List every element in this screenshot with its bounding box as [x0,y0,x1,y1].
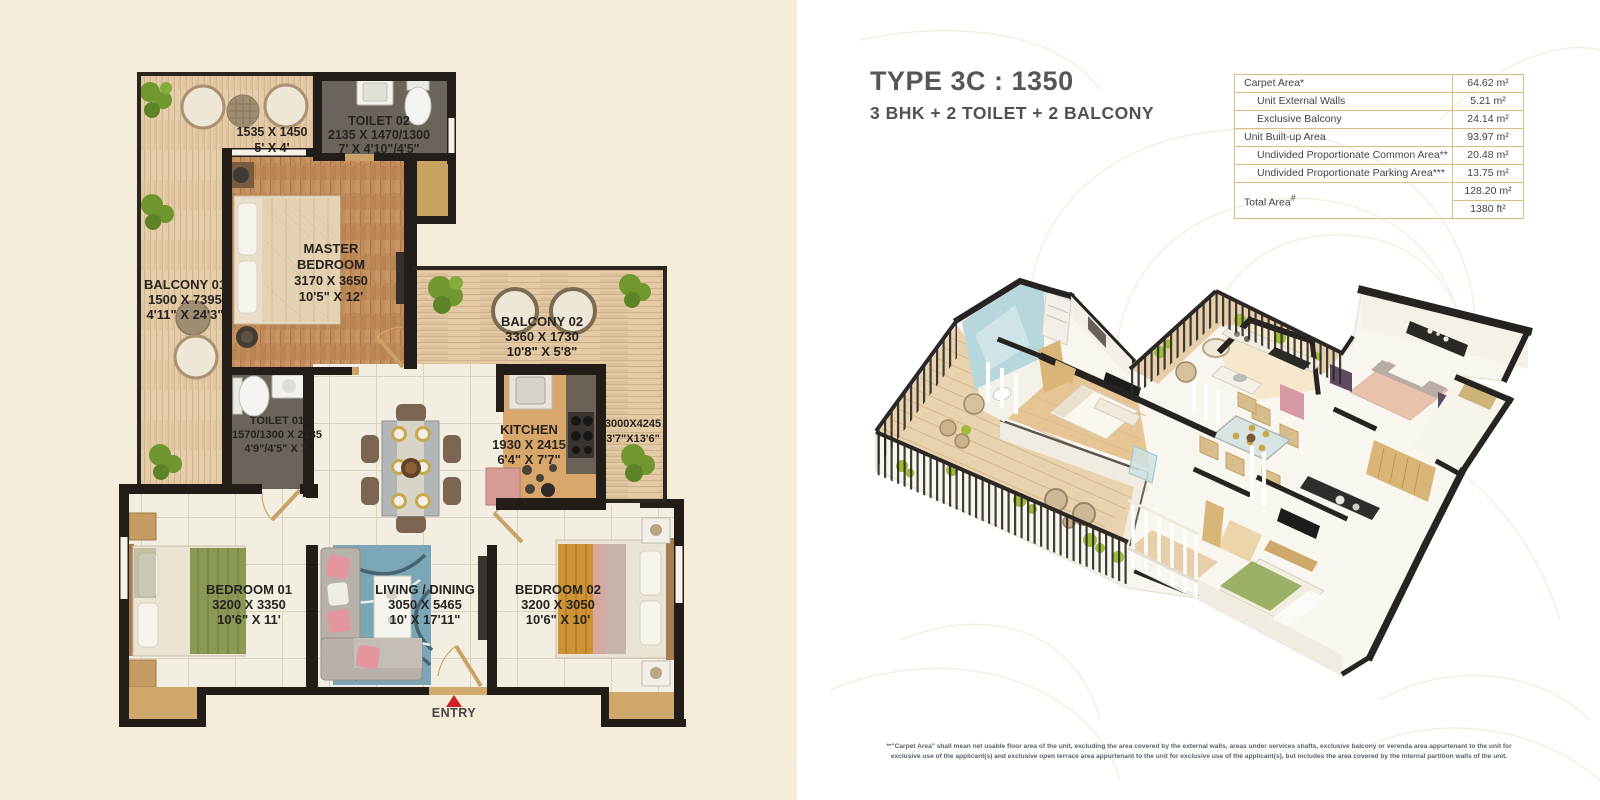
svg-text:TOILET 02: TOILET 02 [348,114,410,128]
svg-text:3000X4245: 3000X4245 [605,418,661,430]
svg-text:LIVING / DINING: LIVING / DINING [375,582,475,597]
svg-text:7' X 4'10"/4'5": 7' X 4'10"/4'5" [338,142,419,156]
svg-text:1570/1300 X 2135: 1570/1300 X 2135 [232,429,322,441]
svg-text:BEDROOM 02: BEDROOM 02 [515,582,601,597]
svg-text:3360 X 1730: 3360 X 1730 [505,329,579,344]
svg-text:KITCHEN: KITCHEN [500,422,558,437]
svg-text:10'6" X 10': 10'6" X 10' [526,612,590,627]
svg-text:3'7"X13'6": 3'7"X13'6" [606,433,660,445]
svg-text:1930 X 2415: 1930 X 2415 [492,437,566,452]
svg-text:1535 X 1450: 1535 X 1450 [237,125,308,139]
svg-text:5' X 4': 5' X 4' [254,141,289,155]
svg-text:2135 X 1470/1300: 2135 X 1470/1300 [328,128,430,142]
svg-text:MASTER: MASTER [304,241,360,256]
svg-text:3050 X 5465: 3050 X 5465 [388,597,462,612]
svg-text:10'6" X 11': 10'6" X 11' [217,612,281,627]
svg-text:10'5" X 12': 10'5" X 12' [299,289,363,304]
svg-text:4'11" X 24'3": 4'11" X 24'3" [146,307,223,322]
svg-text:3170 X 3650: 3170 X 3650 [294,273,368,288]
svg-text:3200 X 3050: 3200 X 3050 [521,597,595,612]
svg-text:3200 X 3350: 3200 X 3350 [212,597,286,612]
svg-text:10' X 17'11": 10' X 17'11" [390,612,461,627]
svg-text:ENTRY: ENTRY [432,706,477,720]
svg-text:6'4" X 7'7": 6'4" X 7'7" [497,452,560,467]
svg-text:10'8" X 5'8": 10'8" X 5'8" [507,344,578,359]
svg-text:BALCONY 01: BALCONY 01 [144,277,226,292]
svg-text:BEDROOM: BEDROOM [297,257,365,272]
svg-text:BEDROOM 01: BEDROOM 01 [206,582,292,597]
svg-text:4'9"/4'5" X 7': 4'9"/4'5" X 7' [244,443,310,455]
svg-text:TOILET 01: TOILET 01 [250,415,304,427]
svg-text:BALCONY 02: BALCONY 02 [501,314,583,329]
svg-text:1500 X 7395: 1500 X 7395 [148,292,222,307]
